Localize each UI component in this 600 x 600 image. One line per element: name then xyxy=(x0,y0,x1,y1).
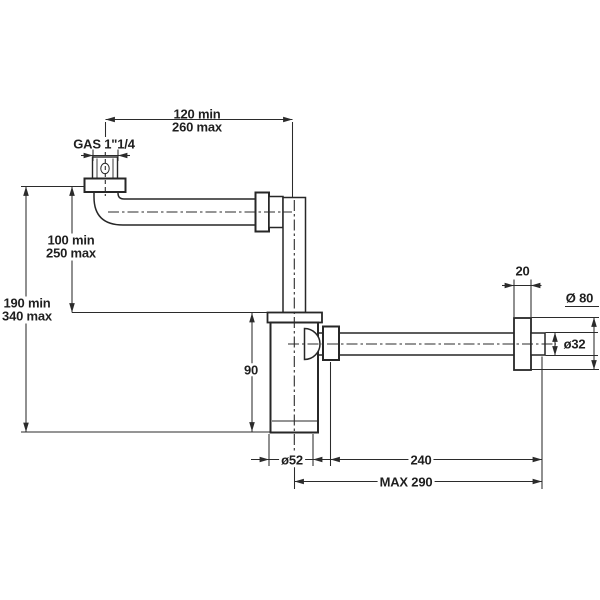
label-top-offset: 120 min 260 max xyxy=(172,107,222,134)
technical-drawing-canvas: 120 min 260 max GAS 1"1/4 100 min 250 ma… xyxy=(0,0,600,600)
label-drop-height-min: 100 min xyxy=(46,233,96,247)
label-total-height-max: 340 max xyxy=(2,310,52,324)
label-flange-thickness: 20 xyxy=(515,264,529,278)
label-top-offset-min: 120 min xyxy=(172,107,222,121)
label-total-height-min: 190 min xyxy=(2,296,52,310)
label-drop-height: 100 min 250 max xyxy=(44,233,98,260)
label-pipe-diameter: ø32 xyxy=(562,337,588,351)
outlet-nut xyxy=(323,327,339,361)
label-flange-diameter: Ø 80 xyxy=(566,291,593,305)
label-inlet-thread: GAS 1"1/4 xyxy=(73,137,134,151)
label-body-diameter: ø52 xyxy=(279,453,305,467)
label-drop-height-max: 250 max xyxy=(46,247,96,261)
label-top-offset-max: 260 max xyxy=(172,121,222,135)
label-body-height: 90 xyxy=(242,363,260,377)
label-outlet-length: 240 xyxy=(408,453,433,467)
label-total-height: 190 min 340 max xyxy=(0,296,54,323)
elbow-pipe xyxy=(94,192,256,225)
pipe-assembly xyxy=(85,157,546,433)
drawing-linework xyxy=(0,0,600,600)
label-max-reach: MAX 290 xyxy=(378,475,435,489)
